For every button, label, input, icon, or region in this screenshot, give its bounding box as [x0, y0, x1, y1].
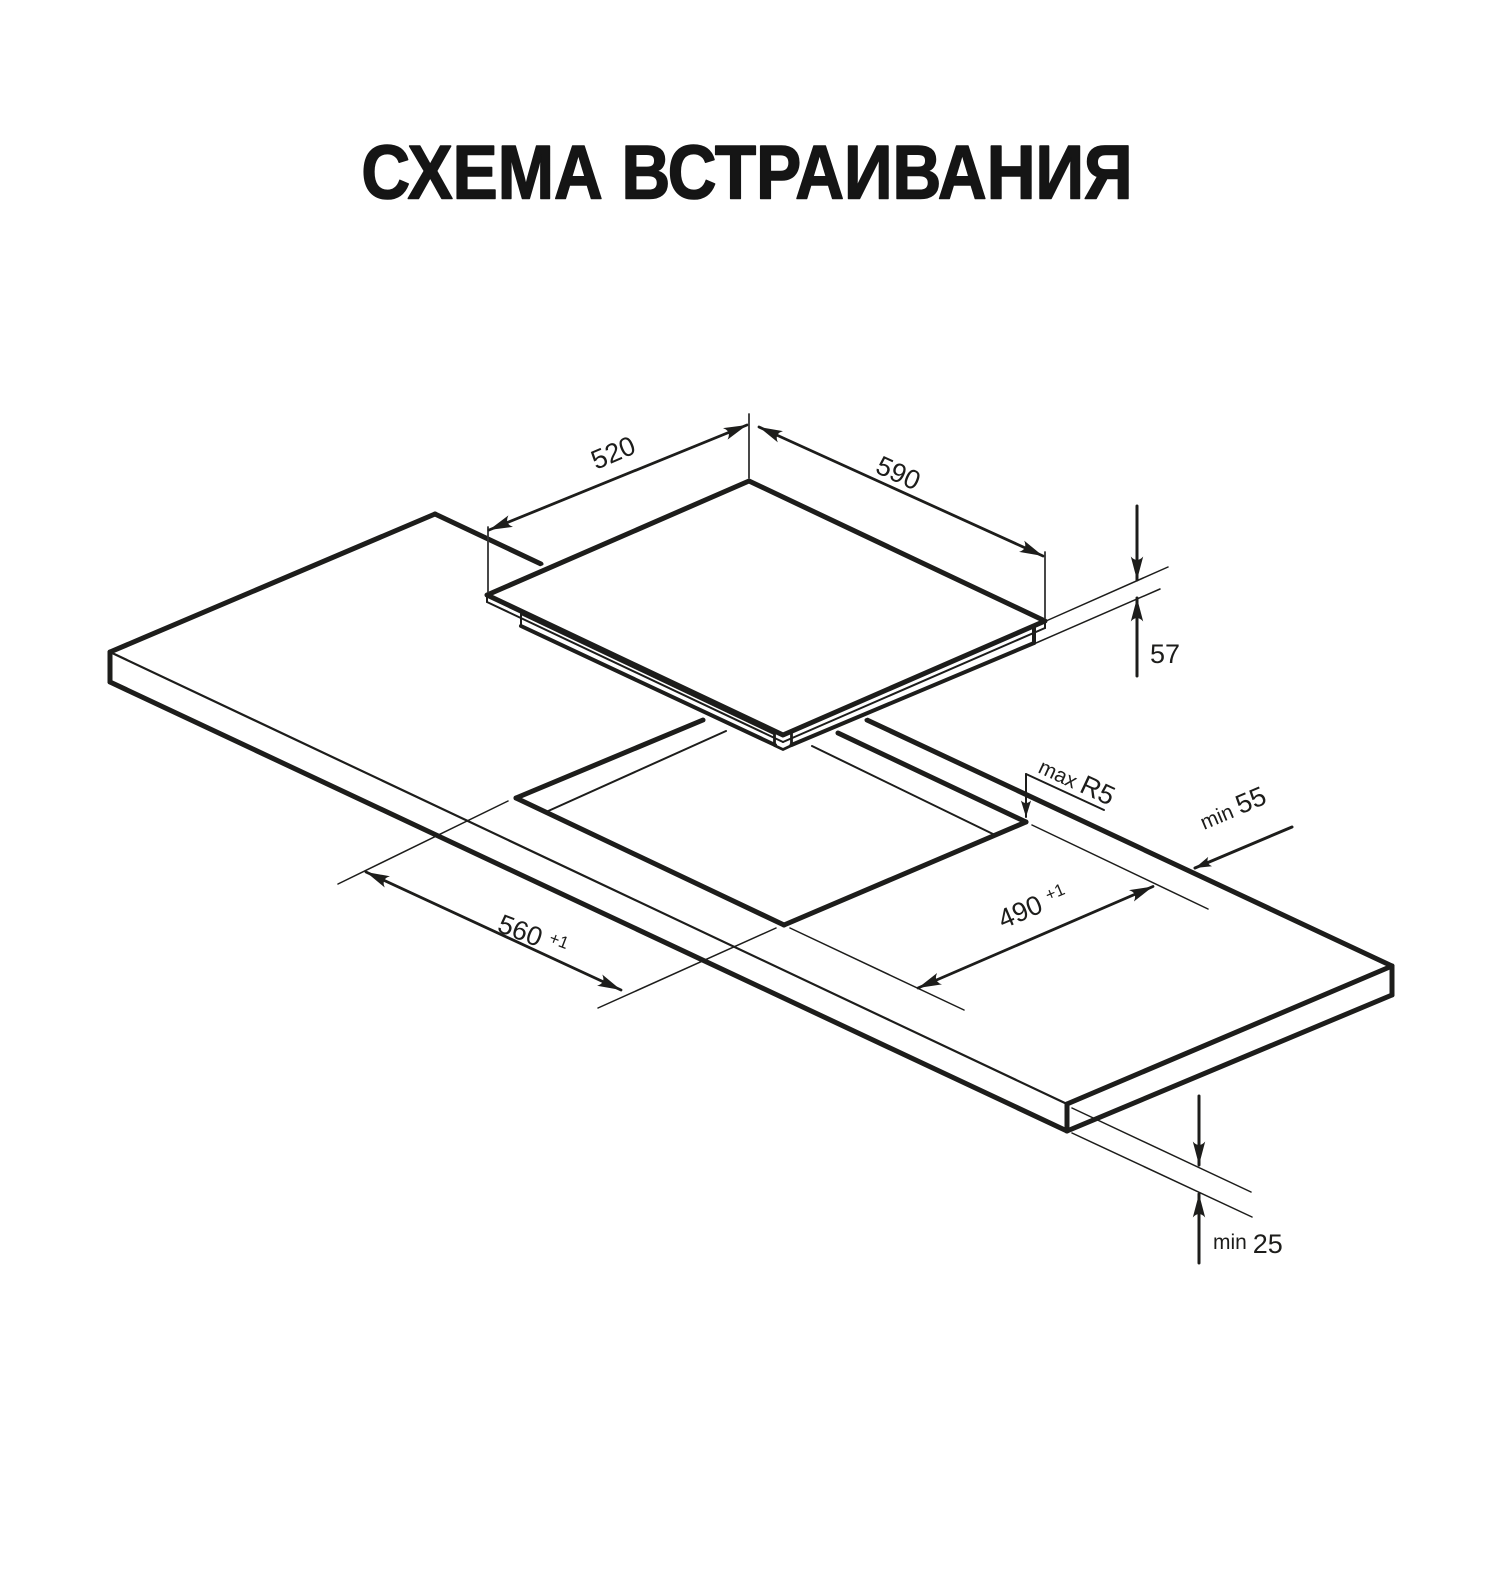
svg-text:520: 520	[587, 430, 640, 475]
svg-text:57: 57	[1150, 639, 1180, 669]
svg-text:590: 590	[872, 450, 925, 496]
svg-text:СХЕМА ВСТРАИВАНИЯ: СХЕМА ВСТРАИВАНИЯ	[361, 131, 1132, 216]
svg-text:min 25: min 25	[1213, 1229, 1283, 1259]
svg-text:min 55: min 55	[1195, 781, 1271, 836]
svg-text:560 +1: 560 +1	[494, 909, 572, 963]
